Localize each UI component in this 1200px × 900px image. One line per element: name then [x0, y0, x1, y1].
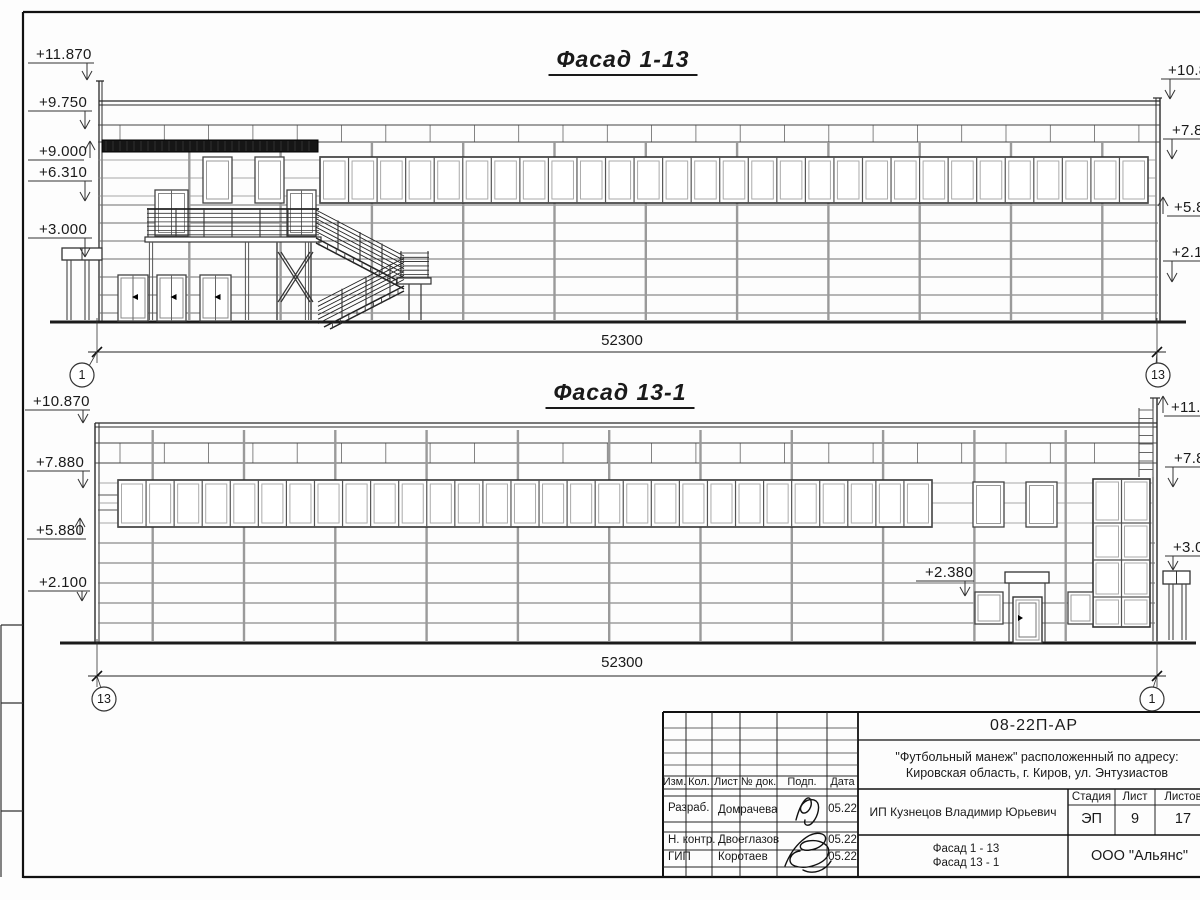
axis-bubble-f2-13: 13 [97, 692, 111, 706]
facade-1-13-title: Фасад 1-13 [549, 46, 698, 76]
row-date-gip: 05.22 [827, 849, 858, 867]
document-code: 08-22П-АР [858, 713, 1200, 739]
elevation-mark-f2-2: +5.880 [36, 522, 84, 539]
axis-bubble-f2-1: 1 [1149, 692, 1156, 706]
sheet-label: Лист [1115, 790, 1155, 805]
stage-value: ЭП [1068, 805, 1115, 834]
drawing-sheet: { "facade1": { "title": "Фасад 1-13", "d… [0, 0, 1200, 900]
axis-bubble-f1-13: 13 [1151, 368, 1165, 382]
row-name-gip: Коротаев [714, 849, 780, 867]
sheet-content-line1: Фасад 1 - 13 [933, 843, 1000, 855]
facade-1-dimension: 52300 [601, 332, 643, 349]
col-list: Лист [712, 776, 740, 789]
row-role-gip: ГИП [664, 849, 720, 867]
facade-drawing-linework [0, 0, 1200, 900]
col-data: Дата [827, 776, 858, 789]
project-address-line2: Кировская область, г. Киров, ул. Энтузиа… [906, 766, 1168, 780]
col-kol: Кол. [686, 776, 712, 789]
elevation-mark-f1-6: +7.8 [1172, 122, 1200, 139]
sheet-number: 9 [1115, 805, 1155, 834]
elevation-mark-f1-4: +3.000 [39, 221, 87, 238]
axis-bubble-f1-1: 1 [79, 368, 86, 382]
sheets-total: 17 [1155, 805, 1200, 834]
elevation-note-2380: +2.380 [925, 564, 973, 581]
sheets-label: Листов [1155, 790, 1200, 805]
row-name-razrab: Домрачева [714, 800, 780, 822]
col-ndok: № док. [740, 776, 777, 789]
col-izm: Изм. [663, 776, 686, 789]
row-role-razrab: Разраб. [664, 798, 716, 820]
elevation-mark-f2-1: +7.880 [36, 454, 84, 471]
elevation-mark-f2-0: +10.870 [33, 393, 90, 410]
stage-label: Стадия [1068, 790, 1115, 805]
facade-2-dimension: 52300 [601, 654, 643, 671]
company-name: ООО "Альянс" [1068, 836, 1200, 877]
elevation-mark-f1-0: +11.870 [36, 46, 92, 63]
row-date-razrab: 05.22 [827, 800, 858, 820]
facade-13-1-title: Фасад 13-1 [546, 379, 695, 409]
row-role-nkontr: Н. контр. [664, 831, 720, 850]
row-date-nkontr: 05.22 [827, 831, 858, 850]
elevation-mark-f2-5: +7.8 [1174, 450, 1200, 467]
elevation-mark-f2-6: +3.0 [1173, 539, 1200, 556]
project-address-line1: "Футбольный манеж" расположенный по адре… [895, 750, 1178, 764]
elevation-mark-f1-7: +5.8 [1174, 199, 1200, 216]
client-name: ИП Кузнецов Владимир Юрьевич [860, 791, 1066, 834]
elevation-mark-f1-1: +9.750 [39, 94, 87, 111]
elevation-mark-f2-3: +2.100 [39, 574, 87, 591]
col-podp: Подп. [777, 776, 827, 789]
row-name-nkontr: Двоеглазов [714, 831, 780, 850]
elevation-mark-f1-5: +10.8 [1168, 62, 1200, 79]
elevation-mark-f1-8: +2.1 [1172, 244, 1200, 261]
elevation-mark-f2-4: +11.8 [1171, 399, 1200, 416]
elevation-mark-f1-3: +6.310 [39, 164, 87, 181]
elevation-mark-f1-2: +9.000 [39, 143, 87, 160]
sheet-content-line2: Фасад 13 - 1 [933, 857, 1000, 869]
